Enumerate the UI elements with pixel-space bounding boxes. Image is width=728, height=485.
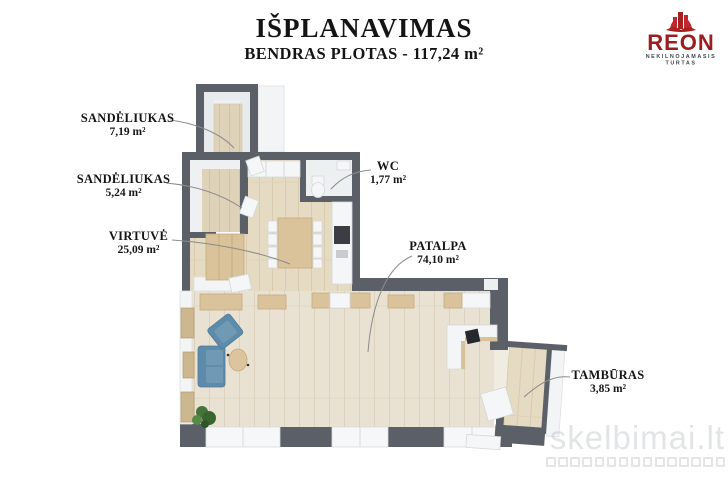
header: IŠPLANAVIMAS BENDRAS PLOTAS - 117,24 m² — [0, 14, 728, 64]
room-label-patalpa: PATALPA 74,10 m² — [367, 239, 509, 268]
room-name: SANDĖLIUKAS — [55, 111, 200, 125]
room-label-wc: WC 1,77 m² — [338, 159, 438, 188]
buildings-icon — [666, 12, 696, 32]
room-label-tamburas: TAMBŪRAS 3,85 m² — [537, 368, 679, 397]
wardrobe — [206, 234, 244, 280]
cooktop — [334, 226, 350, 244]
cabinet — [388, 295, 414, 308]
room-label-virtuve: VIRTUVĖ 25,09 m² — [66, 229, 211, 258]
room-label-sandeliukas-2: SANDĖLIUKAS 5,24 m² — [51, 172, 196, 201]
room-area: 5,24 m² — [51, 187, 196, 200]
floorplan-page: IŠPLANAVIMAS BENDRAS PLOTAS - 117,24 m² … — [0, 0, 728, 485]
window-sill — [183, 352, 194, 378]
left-wall-windows — [180, 291, 194, 424]
room-name: TAMBŪRAS — [537, 368, 679, 382]
room-area: 74,10 m² — [367, 254, 509, 267]
storage1-floor — [214, 104, 242, 152]
room-area: 25,09 m² — [66, 244, 211, 257]
logo-tagline-2: TURTAS — [665, 61, 696, 67]
cabinet — [258, 295, 286, 309]
dining-table — [278, 218, 312, 268]
room-name: SANDĖLIUKAS — [51, 172, 196, 186]
sofa — [198, 346, 225, 387]
window-sill — [181, 308, 194, 338]
room-name: VIRTUVĖ — [66, 229, 211, 243]
room-name: PATALPA — [367, 239, 509, 253]
sideboard — [200, 294, 242, 310]
room-label-sandeliukas-1: SANDĖLIUKAS 7,19 m² — [55, 111, 200, 140]
exterior-block — [258, 86, 284, 152]
page-subtitle: BENDRAS PLOTAS - 117,24 m² — [0, 44, 728, 64]
logo-name: REON — [647, 30, 715, 55]
room-area: 3,85 m² — [537, 383, 679, 396]
logo-tagline-1: NEKILNOJAMASIS — [646, 54, 717, 60]
room-area: 1,77 m² — [338, 174, 438, 187]
window-sill — [181, 392, 194, 422]
reon-logo-graphic: REON NEKILNOJAMASIS TURTAS — [640, 8, 722, 66]
room-area: 7,19 m² — [55, 126, 200, 139]
room-name: WC — [338, 159, 438, 173]
reon-logo: REON NEKILNOJAMASIS TURTAS — [640, 8, 722, 66]
page-title: IŠPLANAVIMAS — [0, 14, 728, 42]
desk-chair — [465, 329, 480, 344]
